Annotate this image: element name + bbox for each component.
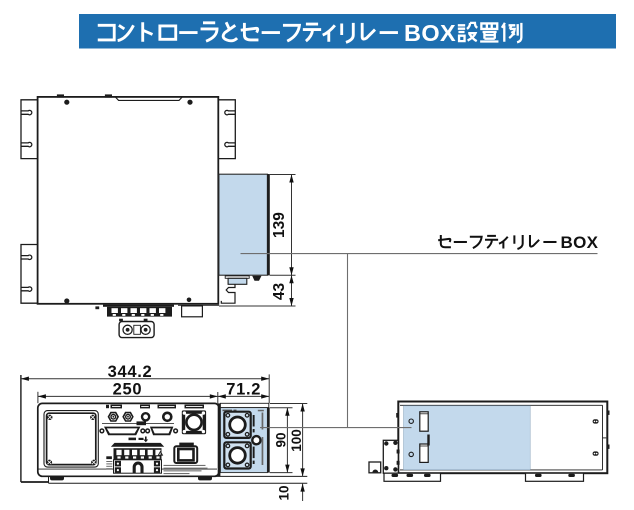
svg-text:250: 250 xyxy=(113,380,143,398)
svg-text:139: 139 xyxy=(271,212,288,238)
svg-text:BOX: BOX xyxy=(561,233,599,252)
svg-text:BOX: BOX xyxy=(404,20,456,46)
svg-text:71.2: 71.2 xyxy=(226,380,261,398)
svg-text:43: 43 xyxy=(271,283,288,301)
svg-text:344.2: 344.2 xyxy=(108,363,153,381)
svg-text:90: 90 xyxy=(273,432,288,447)
svg-text:100: 100 xyxy=(289,429,304,452)
svg-text:10: 10 xyxy=(276,485,291,500)
